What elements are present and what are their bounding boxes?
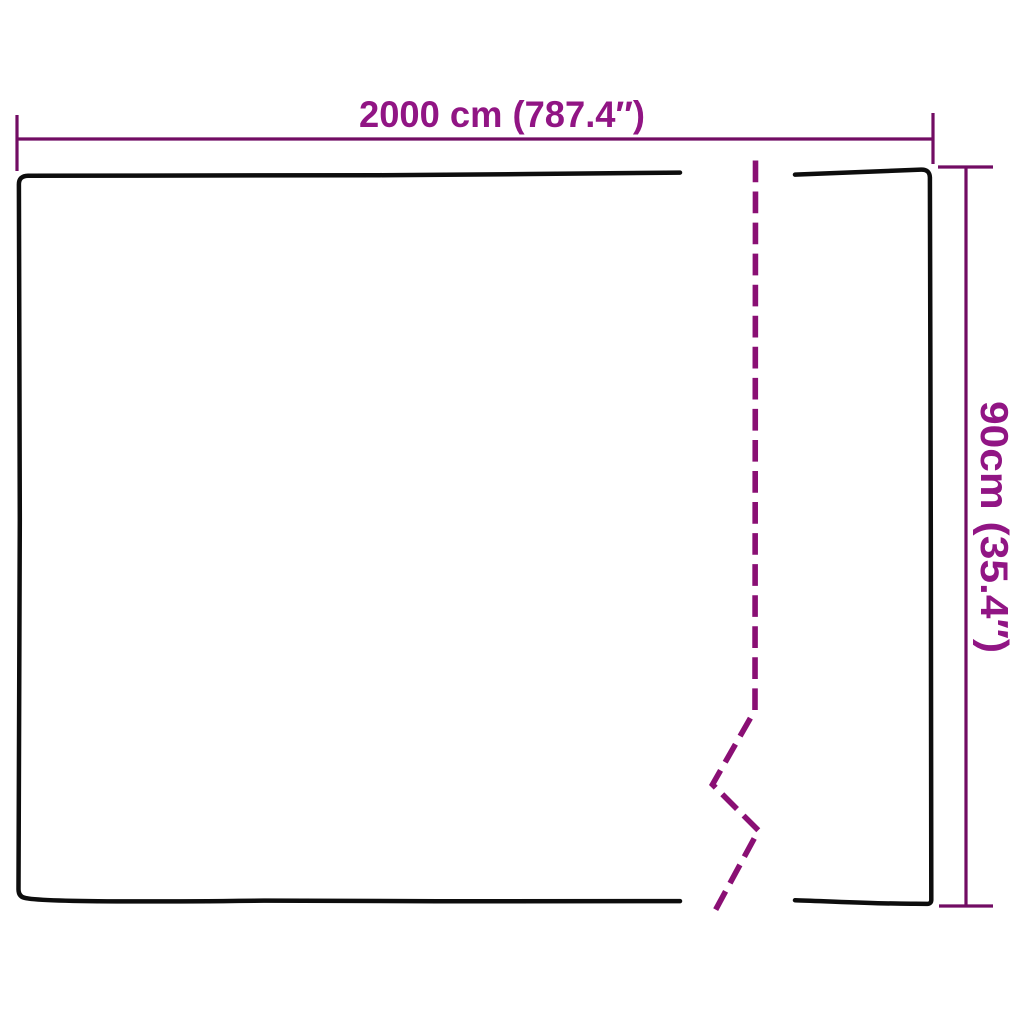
- svg-text:2000 cm (787.4″): 2000 cm (787.4″): [359, 93, 645, 135]
- svg-text:90cm (35.4″): 90cm (35.4″): [972, 401, 1015, 653]
